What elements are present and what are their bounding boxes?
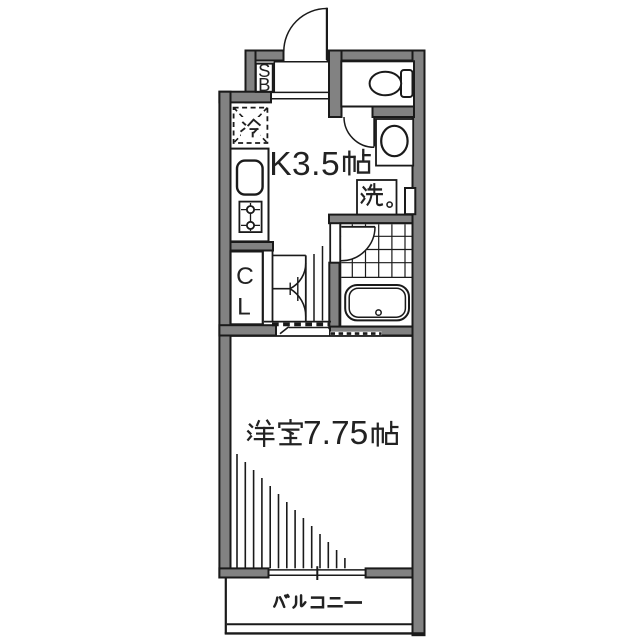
svg-text:L: L xyxy=(237,294,251,321)
svg-text:K3.5: K3.5 xyxy=(269,146,340,183)
svg-text:C: C xyxy=(236,263,254,290)
svg-text:7.75: 7.75 xyxy=(303,415,368,452)
svg-text:B: B xyxy=(258,74,270,95)
